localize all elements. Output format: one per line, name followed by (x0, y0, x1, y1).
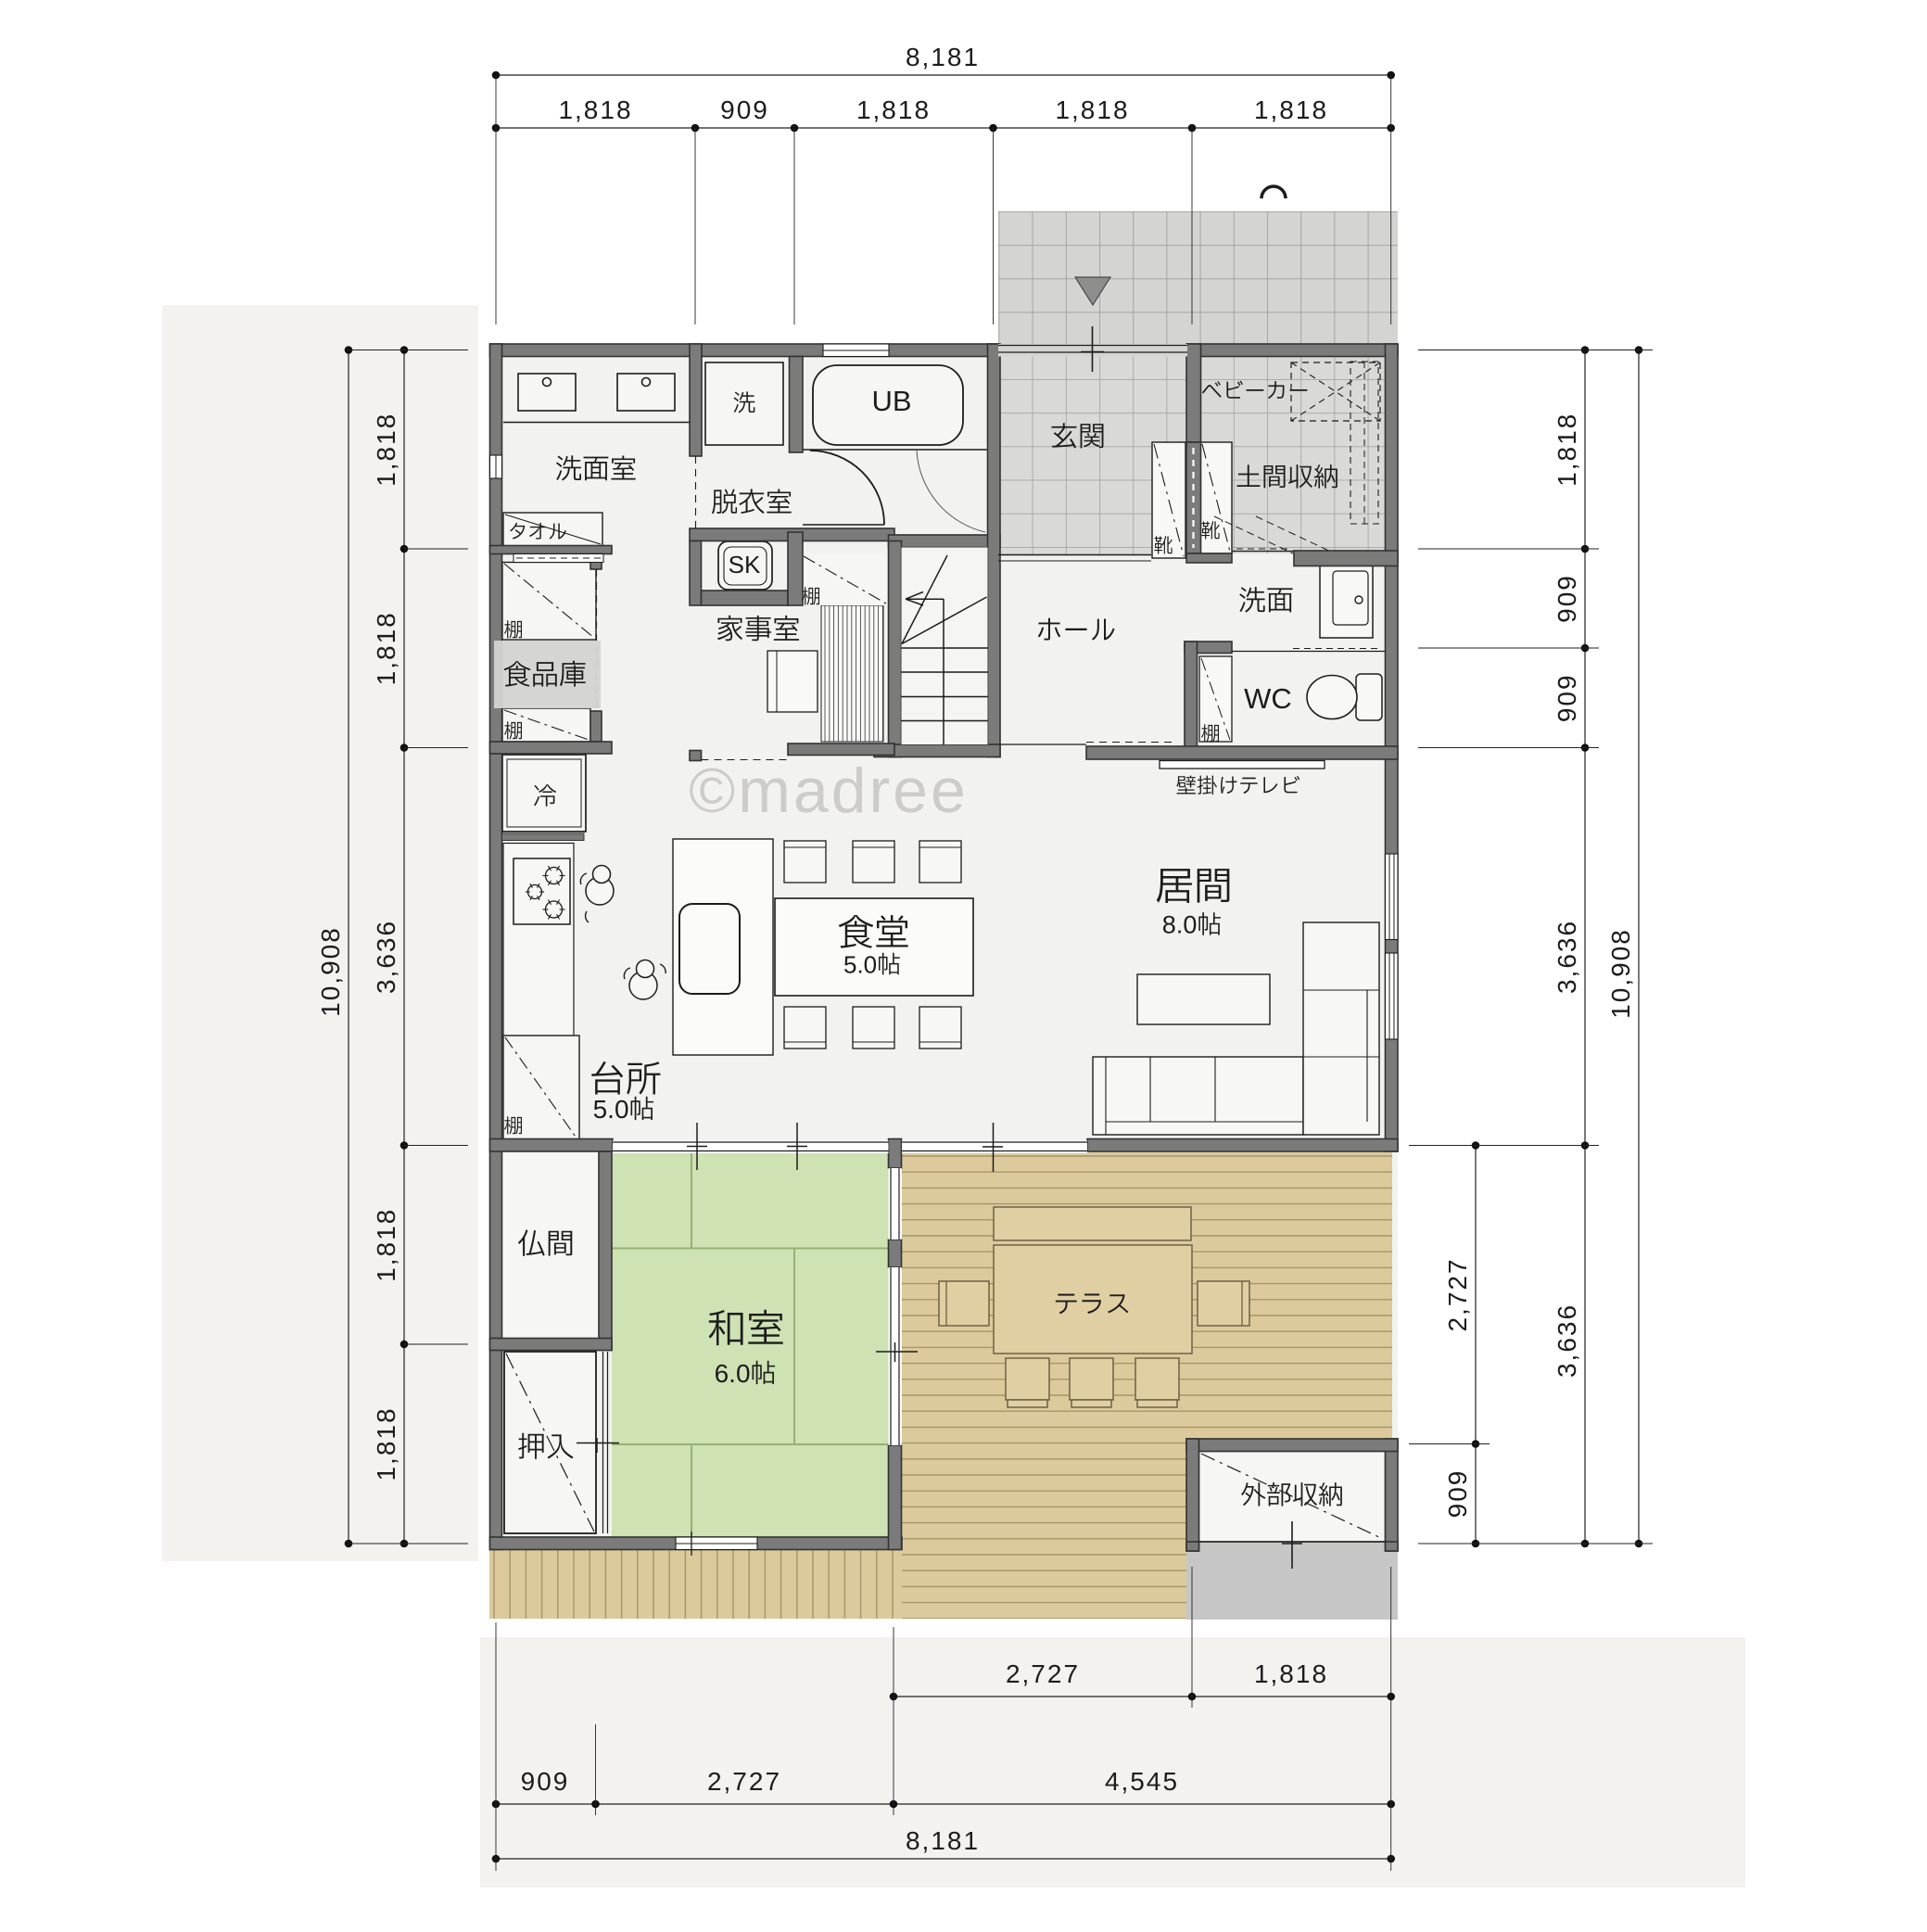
svg-text:8,181: 8,181 (906, 1826, 980, 1855)
svg-text:1,818: 1,818 (1254, 95, 1328, 124)
svg-text:2,727: 2,727 (1443, 1257, 1472, 1331)
svg-text:909: 909 (1553, 673, 1581, 722)
svg-text:1,818: 1,818 (558, 95, 632, 124)
svg-text:1,818: 1,818 (1553, 413, 1581, 487)
svg-text:6.0: 6.0 (715, 1359, 751, 1388)
svg-text:5.0: 5.0 (593, 1095, 629, 1124)
svg-text:2,727: 2,727 (1006, 1659, 1080, 1688)
svg-text:5.0: 5.0 (843, 950, 877, 978)
svg-text:909: 909 (1443, 1469, 1472, 1519)
svg-text:WC: WC (1244, 682, 1292, 715)
svg-text:1,818: 1,818 (1055, 95, 1129, 124)
svg-text:1,818: 1,818 (372, 611, 400, 685)
svg-text:909: 909 (720, 95, 769, 124)
svg-text:10,908: 10,908 (316, 926, 345, 1017)
svg-text:2,727: 2,727 (707, 1767, 781, 1796)
svg-text:909: 909 (521, 1767, 570, 1796)
svg-text:4,545: 4,545 (1105, 1767, 1179, 1796)
svg-text:8,181: 8,181 (906, 43, 980, 71)
svg-text:3,636: 3,636 (372, 920, 400, 994)
svg-text:3,636: 3,636 (1553, 920, 1581, 994)
svg-text:SK: SK (729, 551, 761, 578)
svg-text:10,908: 10,908 (1606, 928, 1635, 1019)
svg-text:UB: UB (871, 385, 911, 417)
svg-text:1,818: 1,818 (372, 1406, 400, 1481)
svg-text:©madree: ©madree (689, 756, 969, 826)
svg-text:1,818: 1,818 (372, 1208, 400, 1282)
svg-text:1,818: 1,818 (856, 95, 931, 124)
svg-text:1,818: 1,818 (372, 413, 400, 487)
svg-text:1,818: 1,818 (1254, 1659, 1328, 1688)
svg-text:8.0: 8.0 (1162, 911, 1198, 939)
svg-text:3,636: 3,636 (1553, 1303, 1581, 1378)
svg-text:909: 909 (1553, 574, 1581, 623)
